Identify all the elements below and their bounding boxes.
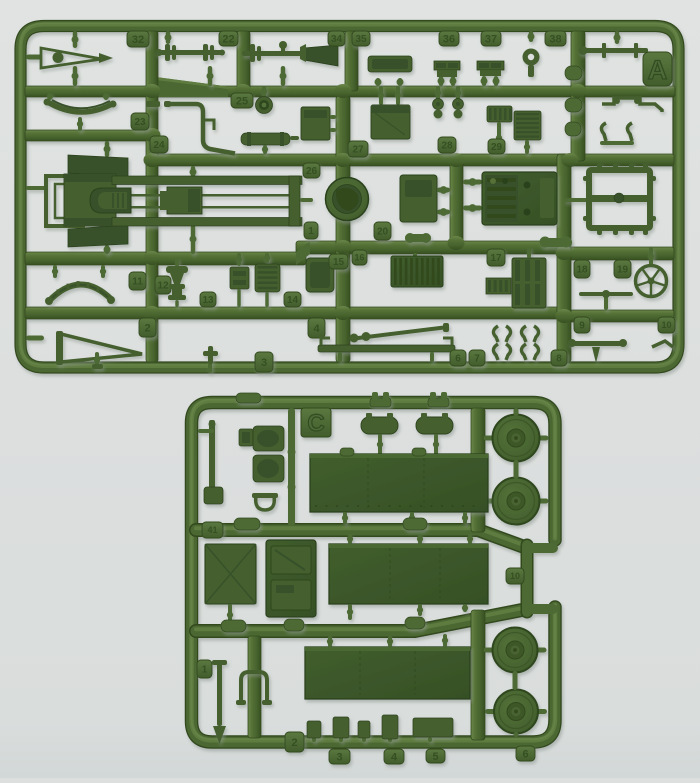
svg-text:6: 6 xyxy=(455,354,461,365)
svg-text:6: 6 xyxy=(522,748,528,760)
svg-text:35: 35 xyxy=(355,34,367,45)
svg-text:37: 37 xyxy=(485,33,497,45)
svg-text:13: 13 xyxy=(202,295,214,306)
svg-text:A: A xyxy=(648,55,668,85)
svg-text:27: 27 xyxy=(352,145,364,156)
svg-text:18: 18 xyxy=(576,265,588,276)
svg-text:5: 5 xyxy=(432,751,438,763)
svg-text:15: 15 xyxy=(333,257,345,268)
svg-text:8: 8 xyxy=(556,354,562,365)
svg-text:20: 20 xyxy=(377,227,389,238)
svg-text:1: 1 xyxy=(202,665,208,676)
svg-text:10: 10 xyxy=(661,320,671,330)
svg-text:1: 1 xyxy=(308,226,314,237)
svg-text:34: 34 xyxy=(331,34,343,45)
svg-text:28: 28 xyxy=(441,141,453,152)
svg-text:26: 26 xyxy=(306,166,318,177)
svg-text:C: C xyxy=(307,410,324,437)
svg-text:11: 11 xyxy=(132,277,143,288)
svg-text:22: 22 xyxy=(222,33,234,45)
svg-text:4: 4 xyxy=(391,751,398,763)
svg-text:14: 14 xyxy=(287,295,299,306)
svg-text:7: 7 xyxy=(474,354,480,365)
svg-text:19: 19 xyxy=(617,265,629,276)
svg-text:9: 9 xyxy=(579,321,585,332)
svg-text:29: 29 xyxy=(491,142,503,153)
svg-text:16: 16 xyxy=(354,253,364,263)
svg-text:36: 36 xyxy=(443,33,455,45)
svg-text:4: 4 xyxy=(313,323,320,335)
svg-text:12: 12 xyxy=(157,281,169,292)
svg-text:3: 3 xyxy=(261,357,267,369)
svg-text:32: 32 xyxy=(132,34,144,46)
svg-text:10: 10 xyxy=(510,571,520,581)
svg-text:23: 23 xyxy=(134,117,146,128)
svg-text:24: 24 xyxy=(153,140,165,151)
svg-text:38: 38 xyxy=(549,33,561,45)
svg-text:2: 2 xyxy=(291,737,297,749)
svg-text:3: 3 xyxy=(336,751,342,763)
svg-text:25: 25 xyxy=(236,95,248,107)
svg-text:2: 2 xyxy=(144,322,150,334)
svg-text:41: 41 xyxy=(207,525,217,535)
svg-text:17: 17 xyxy=(490,253,502,264)
